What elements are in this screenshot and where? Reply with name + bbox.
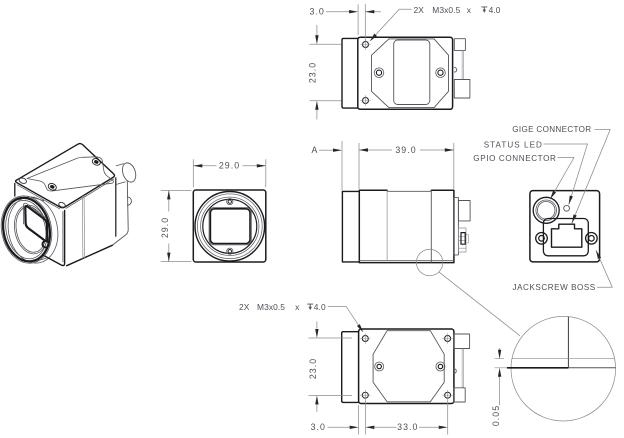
svg-text:0.05: 0.05 xyxy=(491,405,501,426)
svg-text:GPIO CONNECTOR: GPIO CONNECTOR xyxy=(473,154,556,163)
svg-text:39.0: 39.0 xyxy=(395,145,416,155)
svg-text:2X: 2X xyxy=(239,302,250,312)
svg-text:M3x0.5: M3x0.5 xyxy=(257,302,285,312)
svg-text:2X: 2X xyxy=(414,5,425,15)
svg-text:3.0: 3.0 xyxy=(311,422,326,432)
svg-text:29.0: 29.0 xyxy=(160,217,170,238)
svg-text:GIGE CONNECTOR: GIGE CONNECTOR xyxy=(512,125,591,134)
svg-text:33.0: 33.0 xyxy=(397,422,418,432)
svg-text:4.0: 4.0 xyxy=(489,5,501,15)
svg-text:23.0: 23.0 xyxy=(308,62,318,83)
svg-text:3.0: 3.0 xyxy=(310,7,325,17)
svg-text:x: x xyxy=(467,5,472,15)
svg-text:23.0: 23.0 xyxy=(308,358,318,379)
svg-text:JACKSCREW BOSS: JACKSCREW BOSS xyxy=(513,283,596,292)
svg-text:29.0: 29.0 xyxy=(219,161,240,171)
svg-text:4.0: 4.0 xyxy=(314,302,326,312)
svg-text:STATUS LED: STATUS LED xyxy=(484,141,543,150)
svg-text:x: x xyxy=(295,302,300,312)
svg-text:A: A xyxy=(312,145,319,155)
svg-text:M3x0.5: M3x0.5 xyxy=(432,5,460,15)
